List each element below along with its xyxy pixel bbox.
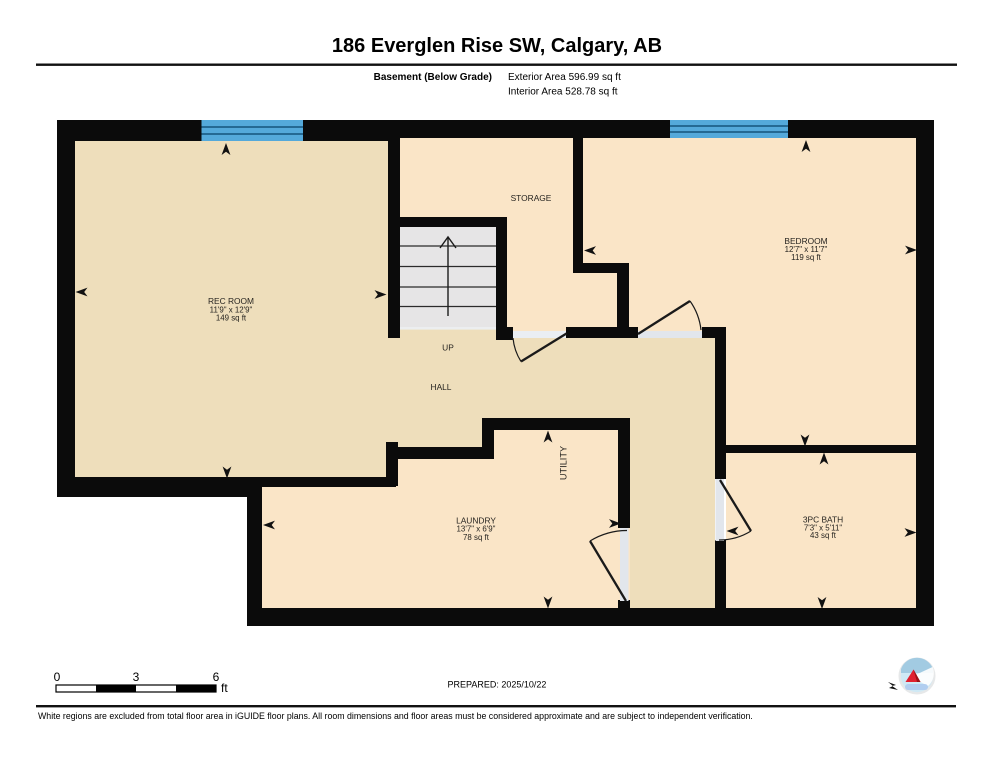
svg-text:UTILITY: UTILITY (559, 446, 569, 480)
svg-text:3: 3 (133, 670, 140, 684)
svg-text:ft: ft (221, 681, 228, 695)
svg-text:Interior Area 528.78 sq ft: Interior Area 528.78 sq ft (508, 87, 618, 98)
svg-text:6: 6 (213, 670, 220, 684)
svg-text:0: 0 (54, 670, 61, 684)
svg-text:HALL: HALL (431, 382, 452, 392)
svg-text:UP: UP (442, 343, 454, 353)
svg-text:78 sq ft: 78 sq ft (463, 533, 490, 542)
svg-text:REC ROOM: REC ROOM (208, 296, 254, 306)
svg-text:White regions are excluded fro: White regions are excluded from total fl… (38, 711, 753, 721)
svg-text:Basement (Below Grade): Basement (Below Grade) (374, 72, 492, 83)
svg-text:186 Everglen Rise SW, Calgary,: 186 Everglen Rise SW, Calgary, AB (332, 35, 662, 57)
svg-text:149 sq ft: 149 sq ft (216, 314, 247, 323)
svg-text:43 sq ft: 43 sq ft (810, 531, 837, 540)
svg-text:PREPARED: 2025/10/22: PREPARED: 2025/10/22 (448, 680, 547, 690)
svg-text:STORAGE: STORAGE (511, 193, 552, 203)
svg-text:Exterior Area 596.99 sq ft: Exterior Area 596.99 sq ft (508, 72, 621, 83)
svg-text:119 sq ft: 119 sq ft (791, 253, 821, 262)
